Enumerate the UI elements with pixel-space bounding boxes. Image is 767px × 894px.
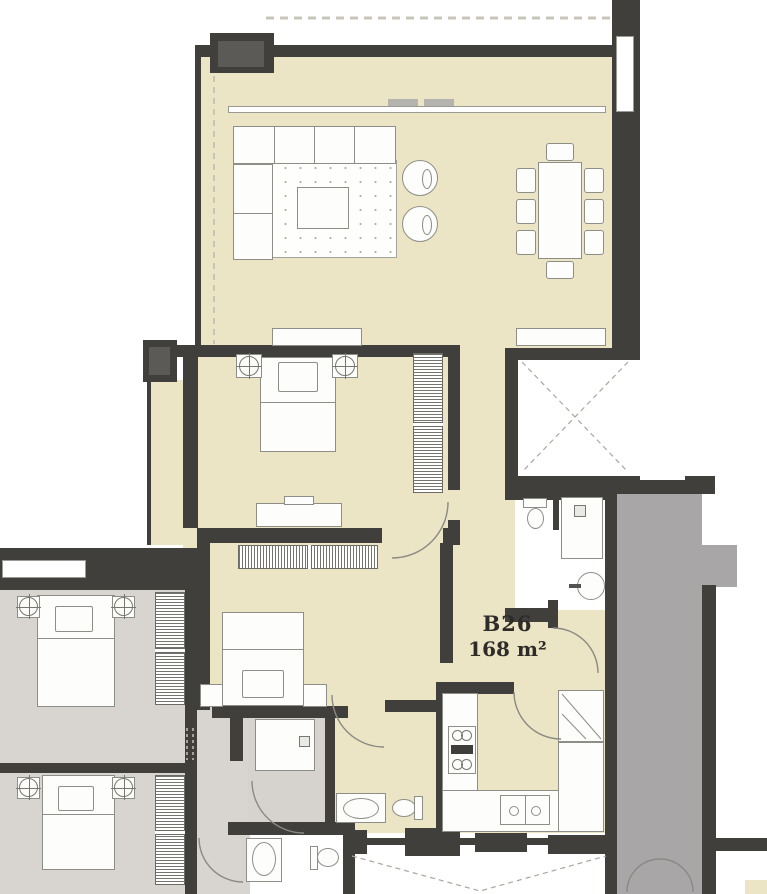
table-lamp [19, 597, 38, 616]
pillow [278, 362, 318, 392]
wall-bath1-partition [553, 488, 559, 530]
dining-chair [584, 199, 604, 224]
wall-master-right-upper [448, 357, 460, 490]
wall-shower-wc-divider [325, 710, 335, 833]
unit-area: 168 m² [450, 637, 565, 662]
neighbor-floor-patch [745, 880, 767, 894]
table-lamp [335, 356, 355, 376]
coffee-table [297, 187, 349, 229]
unit-number: B26 [450, 611, 565, 637]
wall-corridor-top-block [685, 476, 715, 494]
fridge [558, 690, 604, 742]
tv-sideboard [272, 328, 362, 346]
floor-plan: B26 168 m² [0, 0, 767, 894]
window-sill-mark [388, 99, 418, 106]
neighbor-basin [252, 842, 276, 876]
unit-label: B26 168 m² [450, 611, 565, 662]
dining-chair [584, 230, 604, 255]
window-adjacent-top [2, 560, 86, 578]
armchair [402, 160, 438, 196]
dining-chair [516, 230, 536, 255]
shower-drain [574, 505, 586, 517]
sofa-left-section [233, 164, 273, 260]
column-living-topleft-core [218, 41, 264, 67]
corridor-floor [617, 485, 702, 894]
neighbor-wardrobe [155, 592, 185, 705]
wall-living-bottom-right [505, 348, 640, 360]
nightstand [200, 684, 223, 707]
master-balcony-strip [150, 380, 183, 545]
column-bottom-3 [475, 833, 527, 852]
column-bottom-4 [548, 835, 606, 854]
table-lamp [239, 356, 259, 376]
shower-drain [299, 736, 310, 747]
neighbor-wardrobe [155, 775, 185, 885]
pillow [58, 786, 94, 811]
toilet-tank [523, 498, 547, 508]
pillow [55, 606, 93, 632]
wall-east-spine [605, 488, 617, 894]
nightstand [303, 684, 327, 707]
master-dresser [256, 503, 342, 527]
dining-chair [546, 261, 574, 279]
wall-wc-top-piece [385, 700, 440, 712]
table-lamp [114, 778, 133, 797]
wall-shower-room-left [230, 706, 243, 761]
stove [448, 726, 476, 774]
window-sill-mark [424, 99, 454, 106]
wall-bed2-left [197, 528, 210, 710]
window-living-top-band [228, 106, 606, 113]
wall-adjacent-mid [0, 763, 190, 773]
dining-chair [584, 168, 604, 193]
toilet-tank [414, 796, 423, 820]
tv-on-dresser [284, 496, 314, 505]
wall-living-left [195, 57, 201, 347]
dining-chair [546, 143, 574, 161]
washbasin [577, 572, 605, 600]
kitchen-sink-double [500, 795, 550, 825]
dining-chair [516, 199, 536, 224]
toilet-bowl [392, 799, 416, 817]
column-bottom-2 [405, 828, 460, 856]
kitchen-counter-right [558, 742, 604, 832]
dining-table [538, 162, 582, 259]
bedroom2-wardrobe [238, 545, 378, 569]
wall-master-bed2-divider [198, 528, 382, 543]
column-master-topleft-core [149, 347, 170, 375]
wall-adjacent-bath-top [228, 822, 348, 835]
sofa-top-section [233, 126, 396, 164]
master-wardrobe [413, 353, 443, 493]
toilet-bowl [317, 848, 339, 867]
terrace-sight-lines [352, 856, 606, 891]
corridor-notch-floor [702, 545, 737, 587]
armchair [402, 206, 438, 242]
wall-shaft-left [505, 358, 518, 476]
toilet-bowl [527, 508, 544, 529]
window-living-right [616, 36, 634, 112]
table-lamp [19, 778, 38, 797]
wall-master-left [183, 345, 198, 528]
wall-adjacent-right [185, 590, 197, 894]
dining-chair [516, 168, 536, 193]
pillow [242, 670, 284, 698]
wall-balcony-left [147, 380, 151, 545]
shaft-area [518, 358, 632, 476]
wc-basin [343, 798, 379, 819]
wall-adjacent-bath-right [343, 822, 355, 894]
wall-neighbor-left [702, 585, 716, 894]
table-lamp [114, 597, 133, 616]
basin-tap [569, 584, 581, 588]
sideboard [516, 328, 606, 346]
